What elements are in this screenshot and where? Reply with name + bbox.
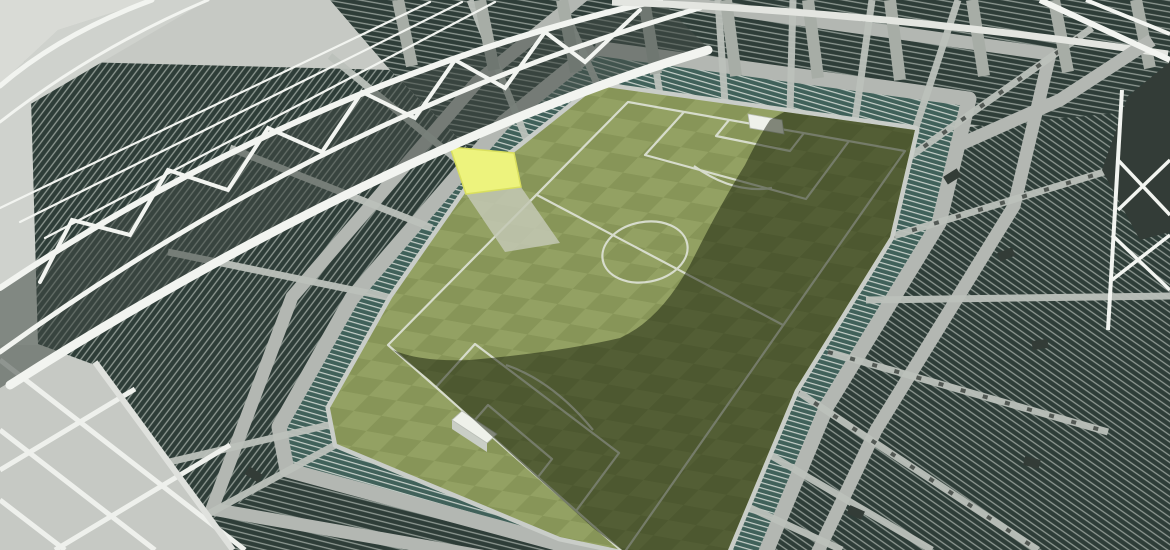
stadium-render — [0, 0, 1170, 550]
stadium-canvas[interactable] — [0, 0, 1170, 550]
